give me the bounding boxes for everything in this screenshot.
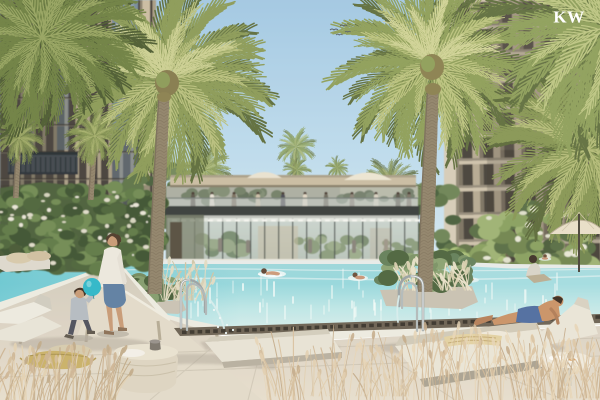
- svg-text:KW: KW: [553, 8, 584, 27]
